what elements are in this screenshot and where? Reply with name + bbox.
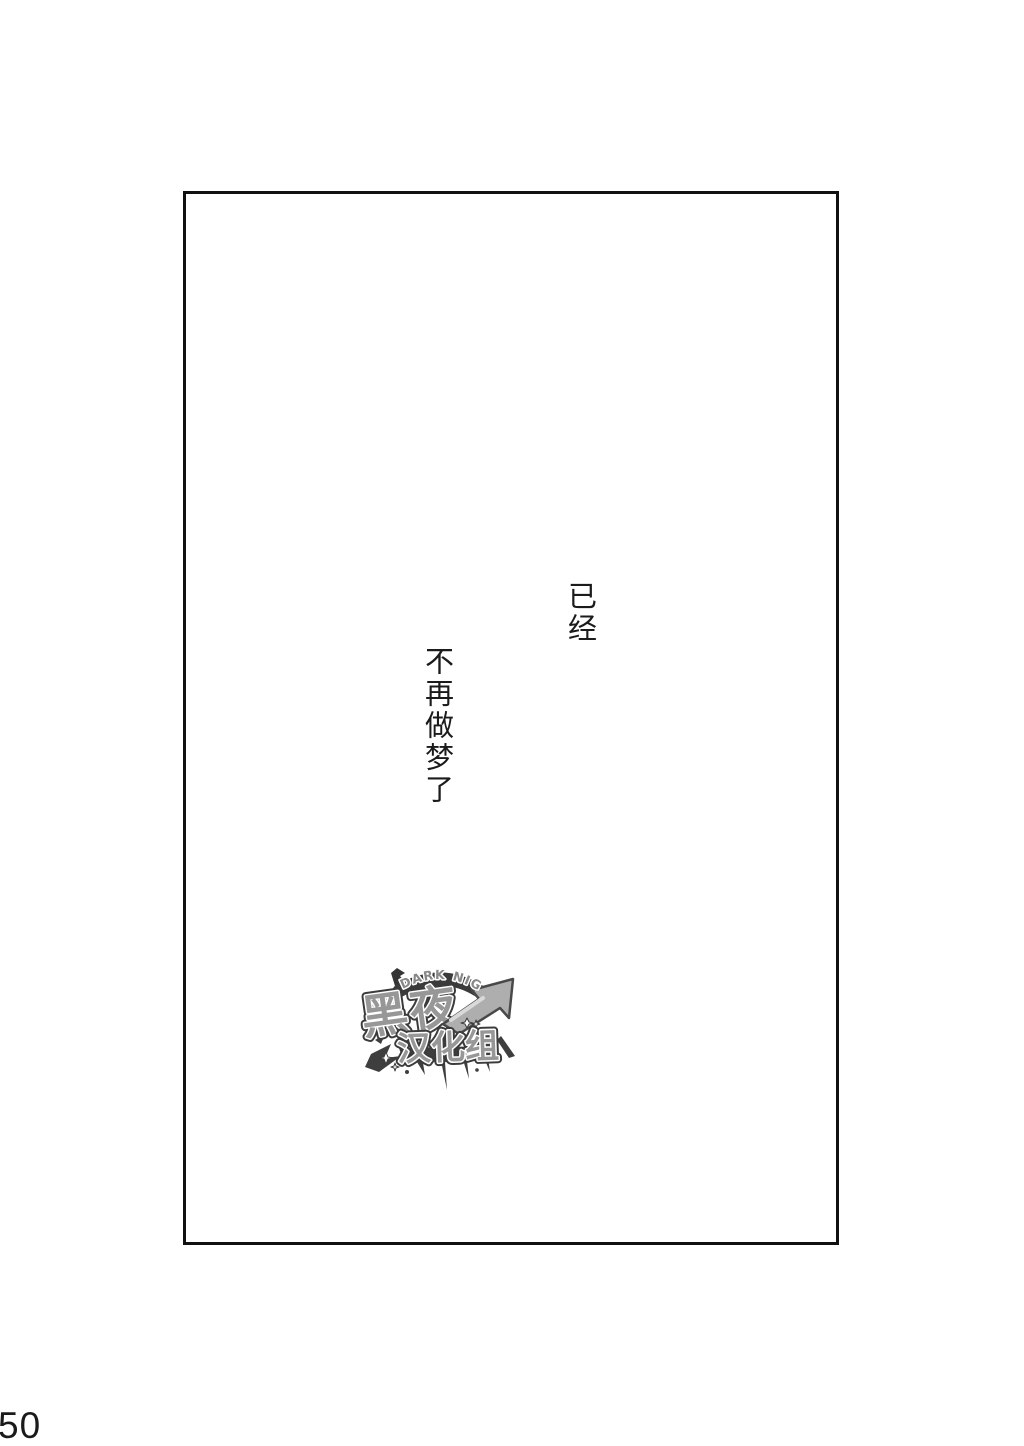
dialogue-text-left: 不再做梦了 <box>422 646 452 806</box>
page-number: 50 <box>0 1407 41 1444</box>
translation-group-watermark: 黑夜 黑夜 黑夜 DARK NIGHT DARK NIGHT <box>355 960 540 1100</box>
group-suffix-text: 汉化组 <box>396 1026 499 1070</box>
dialogue-text-right: 已经 <box>565 581 595 645</box>
page-background: 已经 不再做梦了 黑夜 黑夜 黑夜 <box>0 0 1024 1437</box>
